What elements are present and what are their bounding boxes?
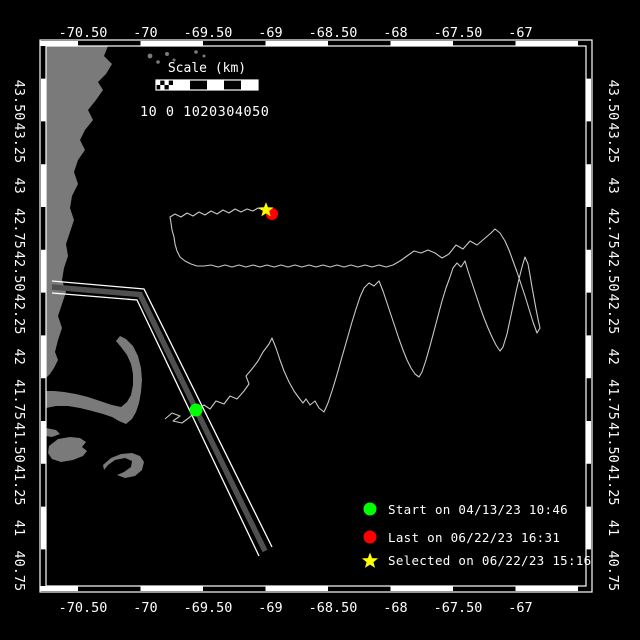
- land-polygon: [103, 453, 144, 478]
- lat-tick-label-right: 42.25: [605, 294, 621, 335]
- land-polygon: [46, 336, 142, 424]
- scale-bar-segment: [207, 81, 224, 90]
- legend-start-label: Start on 04/13/23 10:46: [388, 502, 568, 517]
- lat-tick-label-right: 42.50: [605, 251, 621, 292]
- lat-tick-label-right: 41.50: [605, 422, 621, 463]
- island: [194, 50, 198, 54]
- start-marker-icon: [360, 499, 380, 519]
- lat-tick-label-right: 43: [605, 177, 621, 193]
- island: [165, 52, 169, 56]
- lat-tick-label-right: 41.75: [605, 379, 621, 420]
- lon-tick-label-top: -68.50: [309, 25, 358, 41]
- lat-tick-label-left: 41.25: [11, 465, 27, 506]
- scale-bar-numbers: 10 0 1020304050: [140, 104, 269, 120]
- lat-tick-label-left: 43.50: [11, 80, 27, 121]
- lon-tick-label-bottom: -70: [133, 600, 157, 616]
- lat-tick-label-left: 41: [11, 520, 27, 536]
- shipping-lane-separation-zone: [52, 287, 265, 551]
- island: [148, 54, 153, 59]
- legend-item-selected: Selected on 06/22/23 15:16: [360, 550, 591, 570]
- lat-tick-label-right: 43.50: [605, 80, 621, 121]
- start-position-marker[interactable]: [190, 404, 203, 417]
- scale-bar-segment: [241, 81, 258, 90]
- scale-bar-title: Scale (km): [152, 61, 262, 76]
- lat-tick-label-left: 40.75: [11, 550, 27, 591]
- lon-tick-label-bottom: -67.50: [434, 600, 483, 616]
- lon-tick-label-top: -70.50: [59, 25, 108, 41]
- lon-tick-label-top: -67: [508, 25, 532, 41]
- lat-tick-label-left: 42: [11, 349, 27, 365]
- scale-bar-checker-cell: [160, 85, 164, 90]
- lat-tick-label-right: 42.75: [605, 208, 621, 249]
- lon-tick-label-top: -70: [133, 25, 157, 41]
- land-polygon: [48, 437, 87, 462]
- lat-tick-label-right: 42: [605, 349, 621, 365]
- land-polygon: [46, 46, 112, 378]
- lon-tick-label-top: -67.50: [434, 25, 483, 41]
- legend-item-last: Last on 06/22/23 16:31: [360, 527, 560, 547]
- lat-tick-label-right: 43.25: [605, 122, 621, 163]
- lat-tick-label-right: 41.25: [605, 465, 621, 506]
- lon-tick-label-bottom: -68.50: [309, 600, 358, 616]
- track-map-window: -70.50-70.50-70-70-69.50-69.50-69-69-68.…: [0, 0, 640, 640]
- lat-tick-label-left: 43.25: [11, 122, 27, 163]
- vehicle-track[interactable]: [165, 208, 540, 423]
- island: [203, 55, 206, 58]
- lon-tick-label-bottom: -70.50: [59, 600, 108, 616]
- lat-tick-label-left: 41.75: [11, 379, 27, 420]
- island: [64, 177, 67, 180]
- lon-tick-label-bottom: -68: [383, 600, 407, 616]
- lat-tick-label-right: 41: [605, 520, 621, 536]
- last-marker-icon: [360, 527, 380, 547]
- shipping-lane-boundary: [52, 281, 272, 547]
- lat-tick-label-right: 40.75: [605, 550, 621, 591]
- legend-selected-label: Selected on 06/22/23 15:16: [388, 553, 591, 568]
- lat-tick-label-left: 42.25: [11, 294, 27, 335]
- scale-bar-checker-cell: [165, 80, 169, 85]
- lon-tick-label-bottom: -67: [508, 600, 532, 616]
- selected-marker-star-icon: [360, 550, 380, 570]
- lat-tick-label-left: 43: [11, 177, 27, 193]
- scale-bar-segment: [173, 81, 190, 90]
- lon-tick-label-bottom: -69: [258, 600, 282, 616]
- legend-last-label: Last on 06/22/23 16:31: [388, 530, 560, 545]
- legend-item-start: Start on 04/13/23 10:46: [360, 499, 568, 519]
- lon-tick-label-top: -68: [383, 25, 407, 41]
- lon-tick-label-top: -69.50: [184, 25, 233, 41]
- scale-bar-checker-cell: [156, 80, 160, 85]
- lat-tick-label-left: 42.50: [11, 251, 27, 292]
- lon-tick-label-bottom: -69.50: [184, 600, 233, 616]
- scale-bar-checker-cell: [169, 85, 173, 90]
- lon-tick-label-top: -69: [258, 25, 282, 41]
- land-polygon: [46, 428, 60, 437]
- lat-tick-label-left: 42.75: [11, 208, 27, 249]
- lat-tick-label-left: 41.50: [11, 422, 27, 463]
